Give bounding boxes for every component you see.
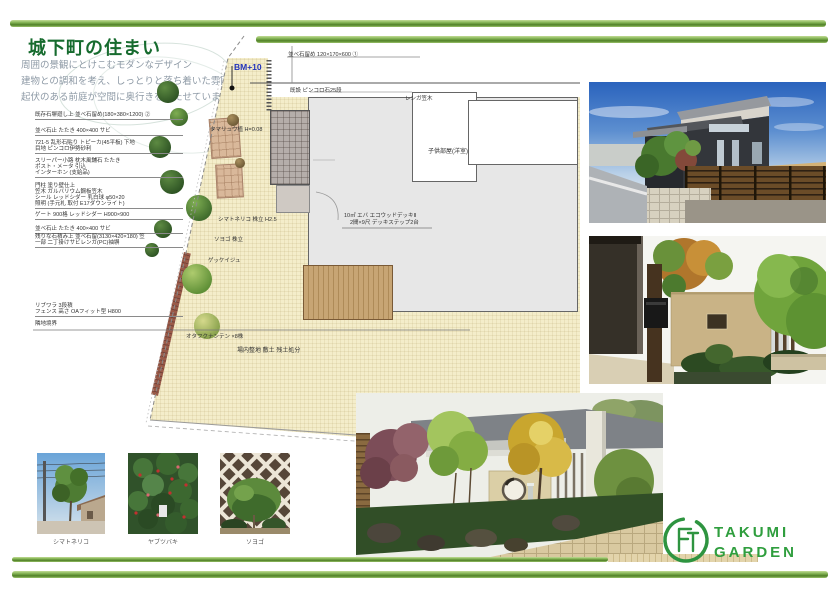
plant-label: ゲッケイジュ <box>208 256 241 264</box>
plant-caption-1: シマトネリコ <box>37 537 105 546</box>
plant-caption-2: ヤブツバキ <box>128 537 198 546</box>
bottom-accent-bar-2 <box>12 571 828 578</box>
ground-note: 場内整地 敷土 残土処分 <box>237 345 300 354</box>
material-note: 一部 二丁掛けサビレンガ(PC)袖塀 <box>35 240 183 248</box>
material-note: ゲート 900格 レッドシダー H900×900 <box>35 212 183 220</box>
material-note: インターホン (支給品) <box>35 170 183 178</box>
room-label: 子供部屋(洋室) <box>428 146 468 155</box>
logo-text-line1: TAKUMI <box>714 524 789 541</box>
brick-cap-note: レンガ笠木 <box>405 94 433 102</box>
bottom-accent-bar <box>12 557 608 562</box>
plant-caption-3: ソヨゴ <box>220 537 290 546</box>
material-note: 照明 (手元札 取付 E17ダウンライト) <box>35 201 183 209</box>
plant-photo-1 <box>37 453 105 534</box>
logo-text-line2: GARDEN <box>714 544 797 561</box>
benchmark-label: BM+10 <box>234 62 262 72</box>
render-photo-entrance-gate <box>589 236 826 384</box>
plant-photo-3 <box>220 453 290 534</box>
edging-note: 並べ石留め 120×170×600 ① <box>288 50 358 58</box>
plant-label: シマトネリコ 株立 H2.5 <box>218 215 277 223</box>
plant-label: ソヨゴ 株立 <box>214 235 243 243</box>
material-note: 既存石塀廻し上 並べ石留め(180×380×1200) ② <box>35 112 183 120</box>
deck-note-2: 2間×9尺 デッキステップ2台 <box>350 218 419 226</box>
material-note: 並べ石止 たたき 400×400 サビ <box>35 128 183 136</box>
pincoro-note: 既設 ピンコロ石25段 <box>290 86 342 94</box>
plant-label: オタフクナンテン ×8株 <box>186 332 243 340</box>
render-photo-front-garden <box>356 393 663 560</box>
boundary-note: 隣地境界 <box>35 321 57 327</box>
logo-monogram-icon <box>679 529 698 551</box>
material-note: 並べ石止 たたき 400×400 サビ <box>35 226 183 234</box>
material-note: 目地 ピンコロ伊勢砂利 <box>35 146 183 154</box>
material-note: フェンス 高さ OAフィット型 H800 <box>35 309 183 317</box>
plant-label: タマリュウ植 H=0.08 <box>210 125 262 133</box>
plant-photo-2 <box>128 453 198 534</box>
company-logo: TAKUMI GARDEN <box>660 510 830 568</box>
render-photo-house-exterior <box>589 82 826 223</box>
